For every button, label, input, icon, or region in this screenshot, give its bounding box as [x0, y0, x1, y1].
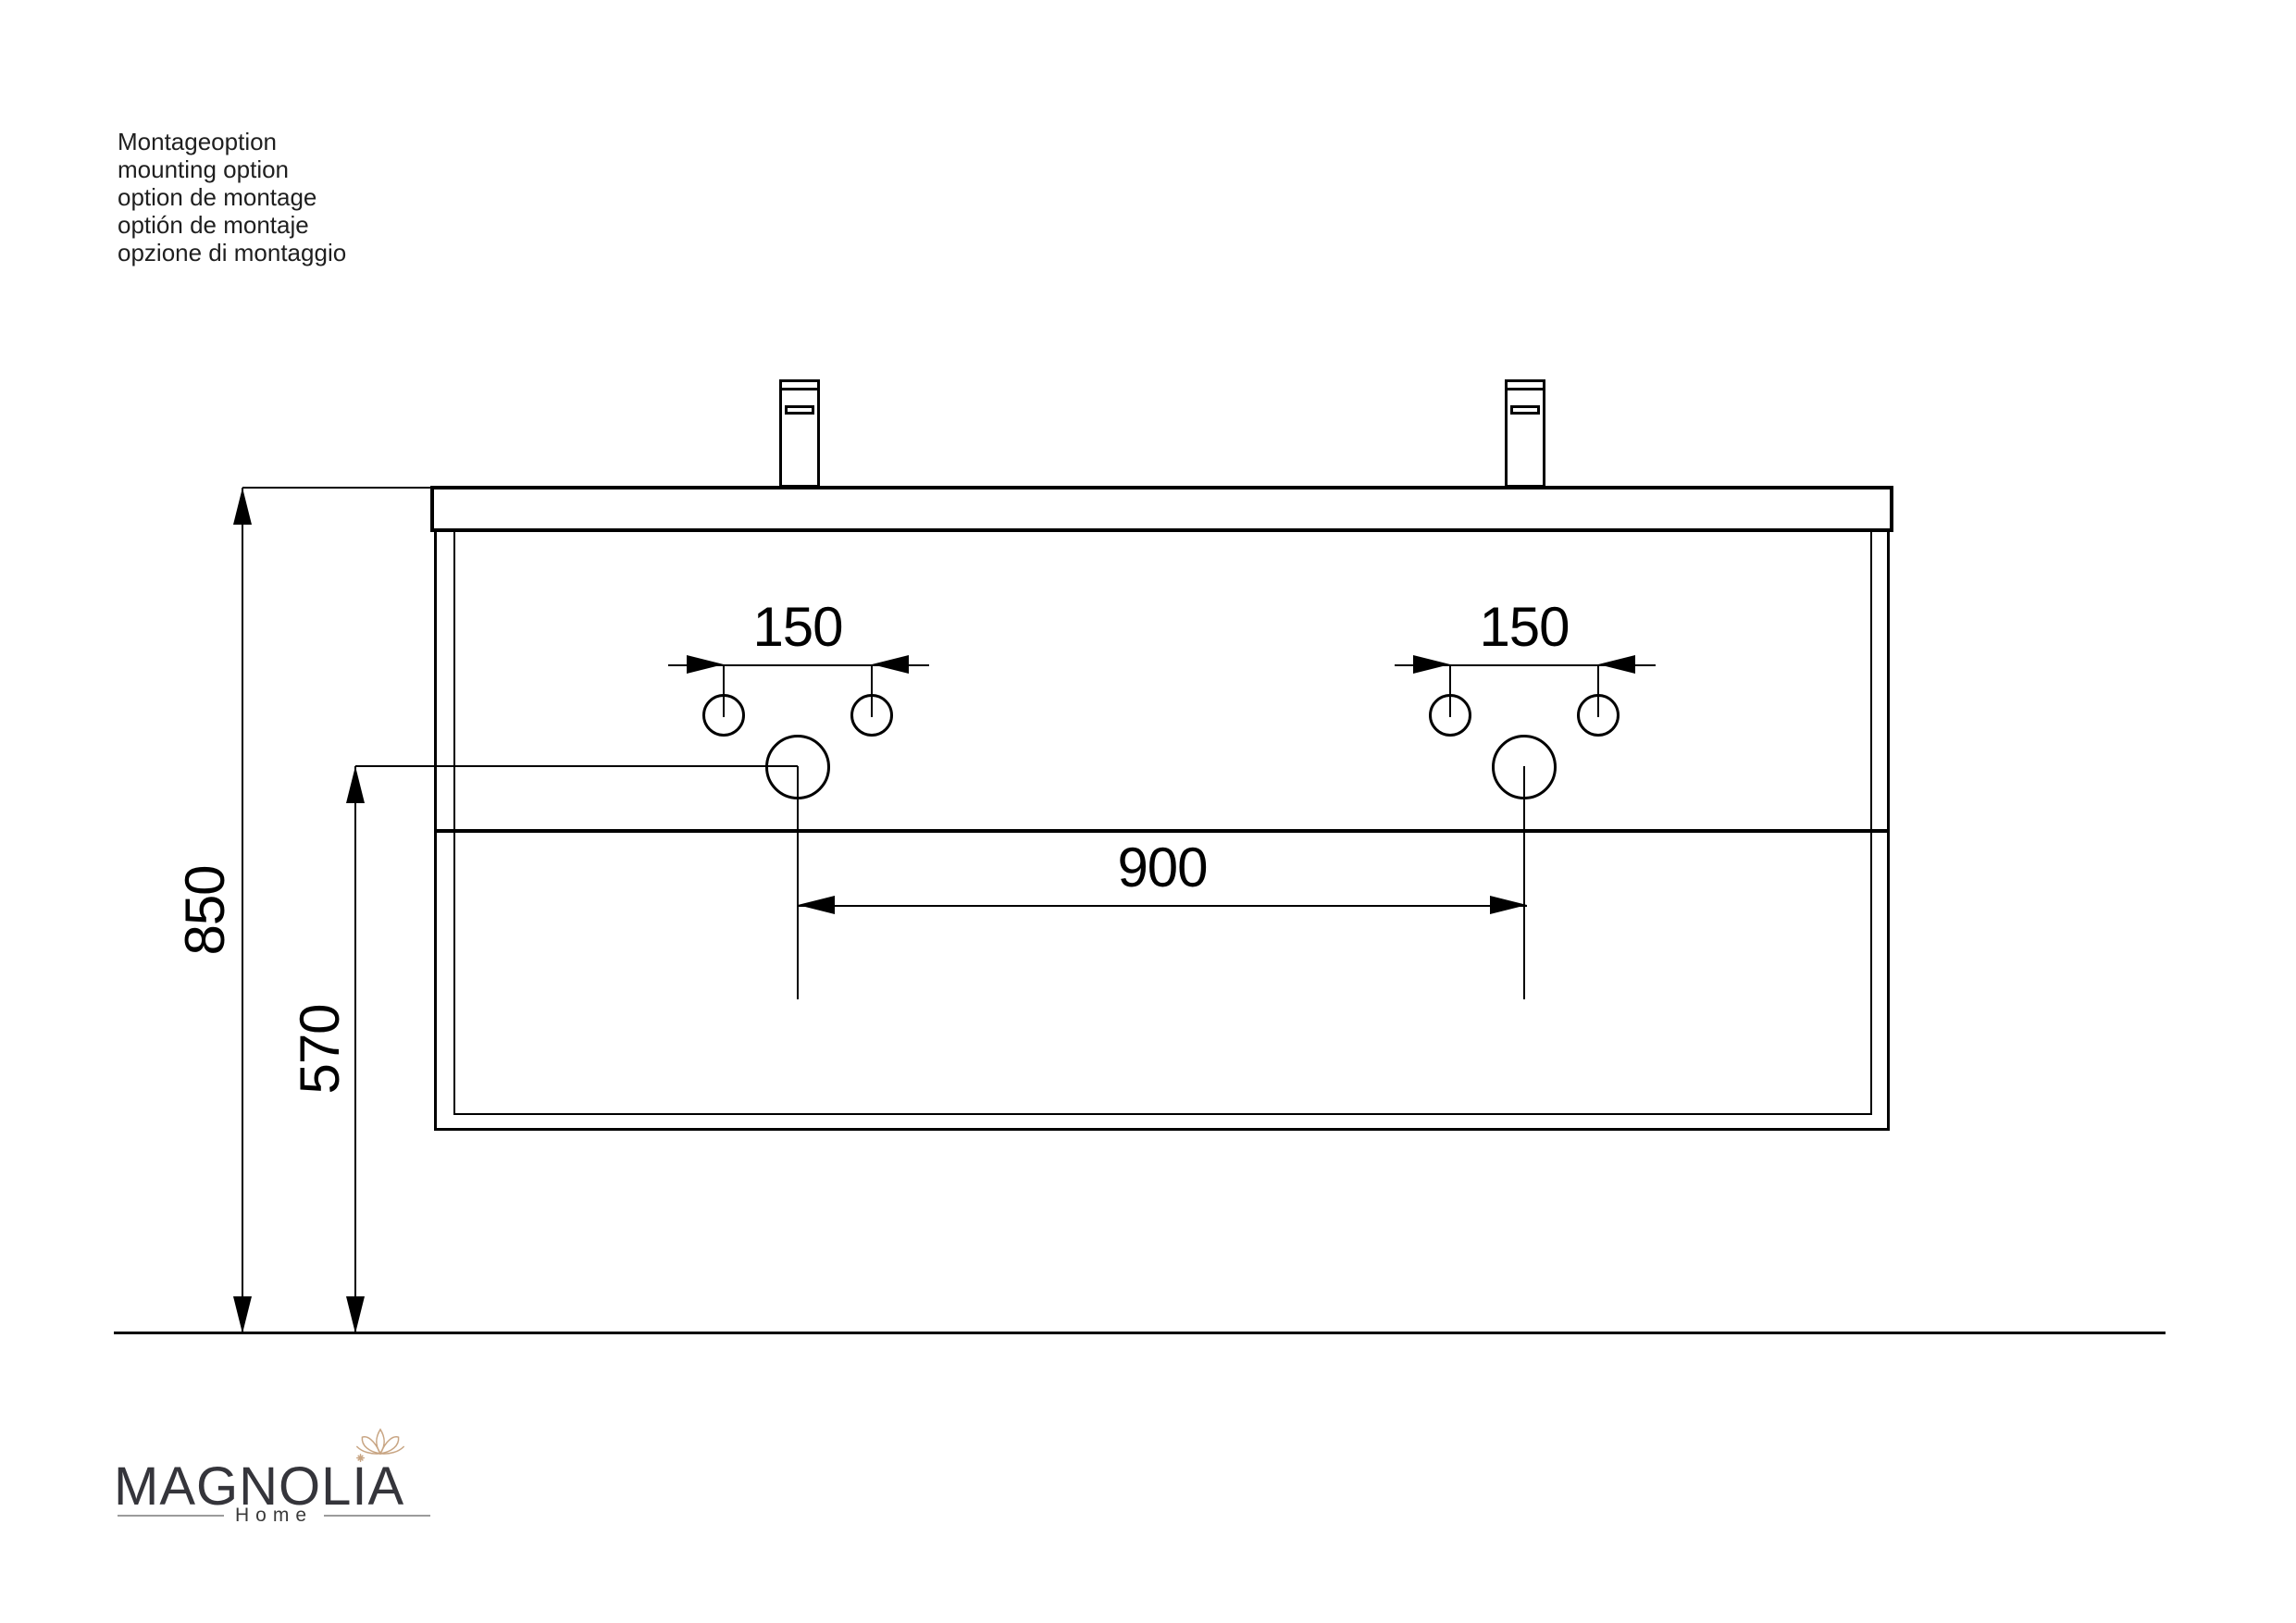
dim-ext-900-right: [1523, 766, 1525, 999]
dim-label-150-right: 150: [1432, 600, 1617, 655]
logo-subtitle-text: Home: [224, 1505, 324, 1527]
mounting-option-caption: Montageoption mounting option option de …: [118, 128, 346, 266]
faucet-right: [1505, 379, 1545, 488]
dim-line-900: [798, 905, 1527, 907]
ground-line: [114, 1332, 2166, 1334]
dim-label-570: 570: [292, 1004, 348, 1094]
dim-line-850: [242, 488, 243, 1333]
caption-line-fr: option de montage: [118, 183, 346, 211]
dim-line-570: [354, 766, 356, 1333]
dim-ext-150-left-b: [871, 664, 873, 717]
dim-arrow-150-left-a: [687, 655, 724, 674]
dim-arrow-150-right-a: [1413, 655, 1450, 674]
cabinet-inner-panel: [453, 532, 1872, 1115]
washbasin-top: [430, 486, 1893, 532]
dim-ext-150-left-a: [723, 664, 725, 717]
dim-ext-150-right-a: [1449, 664, 1451, 717]
dim-label-850: 850: [178, 865, 233, 955]
logo-rule-right: [324, 1515, 430, 1517]
dim-leader-570: [355, 765, 798, 767]
dim-arrow-850-top: [233, 488, 252, 525]
logo-subtitle-row: Home: [118, 1505, 430, 1527]
faucet-left-cap-line: [779, 388, 820, 390]
dim-arrow-570-top: [346, 766, 365, 803]
drawer-divider-line: [434, 829, 1890, 833]
caption-line-es: optión de montaje: [118, 211, 346, 239]
caption-line-de: Montageoption: [118, 128, 346, 155]
dim-label-150-left: 150: [705, 600, 890, 655]
faucet-right-cap-line: [1505, 388, 1545, 390]
dim-ext-150-right-b: [1597, 664, 1599, 717]
caption-line-it: opzione di montaggio: [118, 239, 346, 266]
dim-arrow-150-left-b: [872, 655, 909, 674]
faucet-left: [779, 379, 820, 488]
dim-arrow-150-right-b: [1598, 655, 1635, 674]
dim-arrow-900-left: [798, 896, 835, 914]
faucet-left-spout: [785, 405, 814, 415]
dim-ext-850-top: [242, 487, 430, 489]
faucet-right-spout: [1510, 405, 1540, 415]
dim-arrow-900-right: [1490, 896, 1527, 914]
dim-arrow-850-bottom: [233, 1296, 252, 1333]
dim-arrow-570-bottom: [346, 1296, 365, 1333]
logo-rule-left: [118, 1515, 224, 1517]
dim-ext-900-left: [797, 766, 799, 999]
caption-line-en: mounting option: [118, 155, 346, 183]
technical-drawing-page: Montageoption mounting option option de …: [0, 0, 2296, 1623]
dim-label-900: 900: [1070, 840, 1255, 896]
